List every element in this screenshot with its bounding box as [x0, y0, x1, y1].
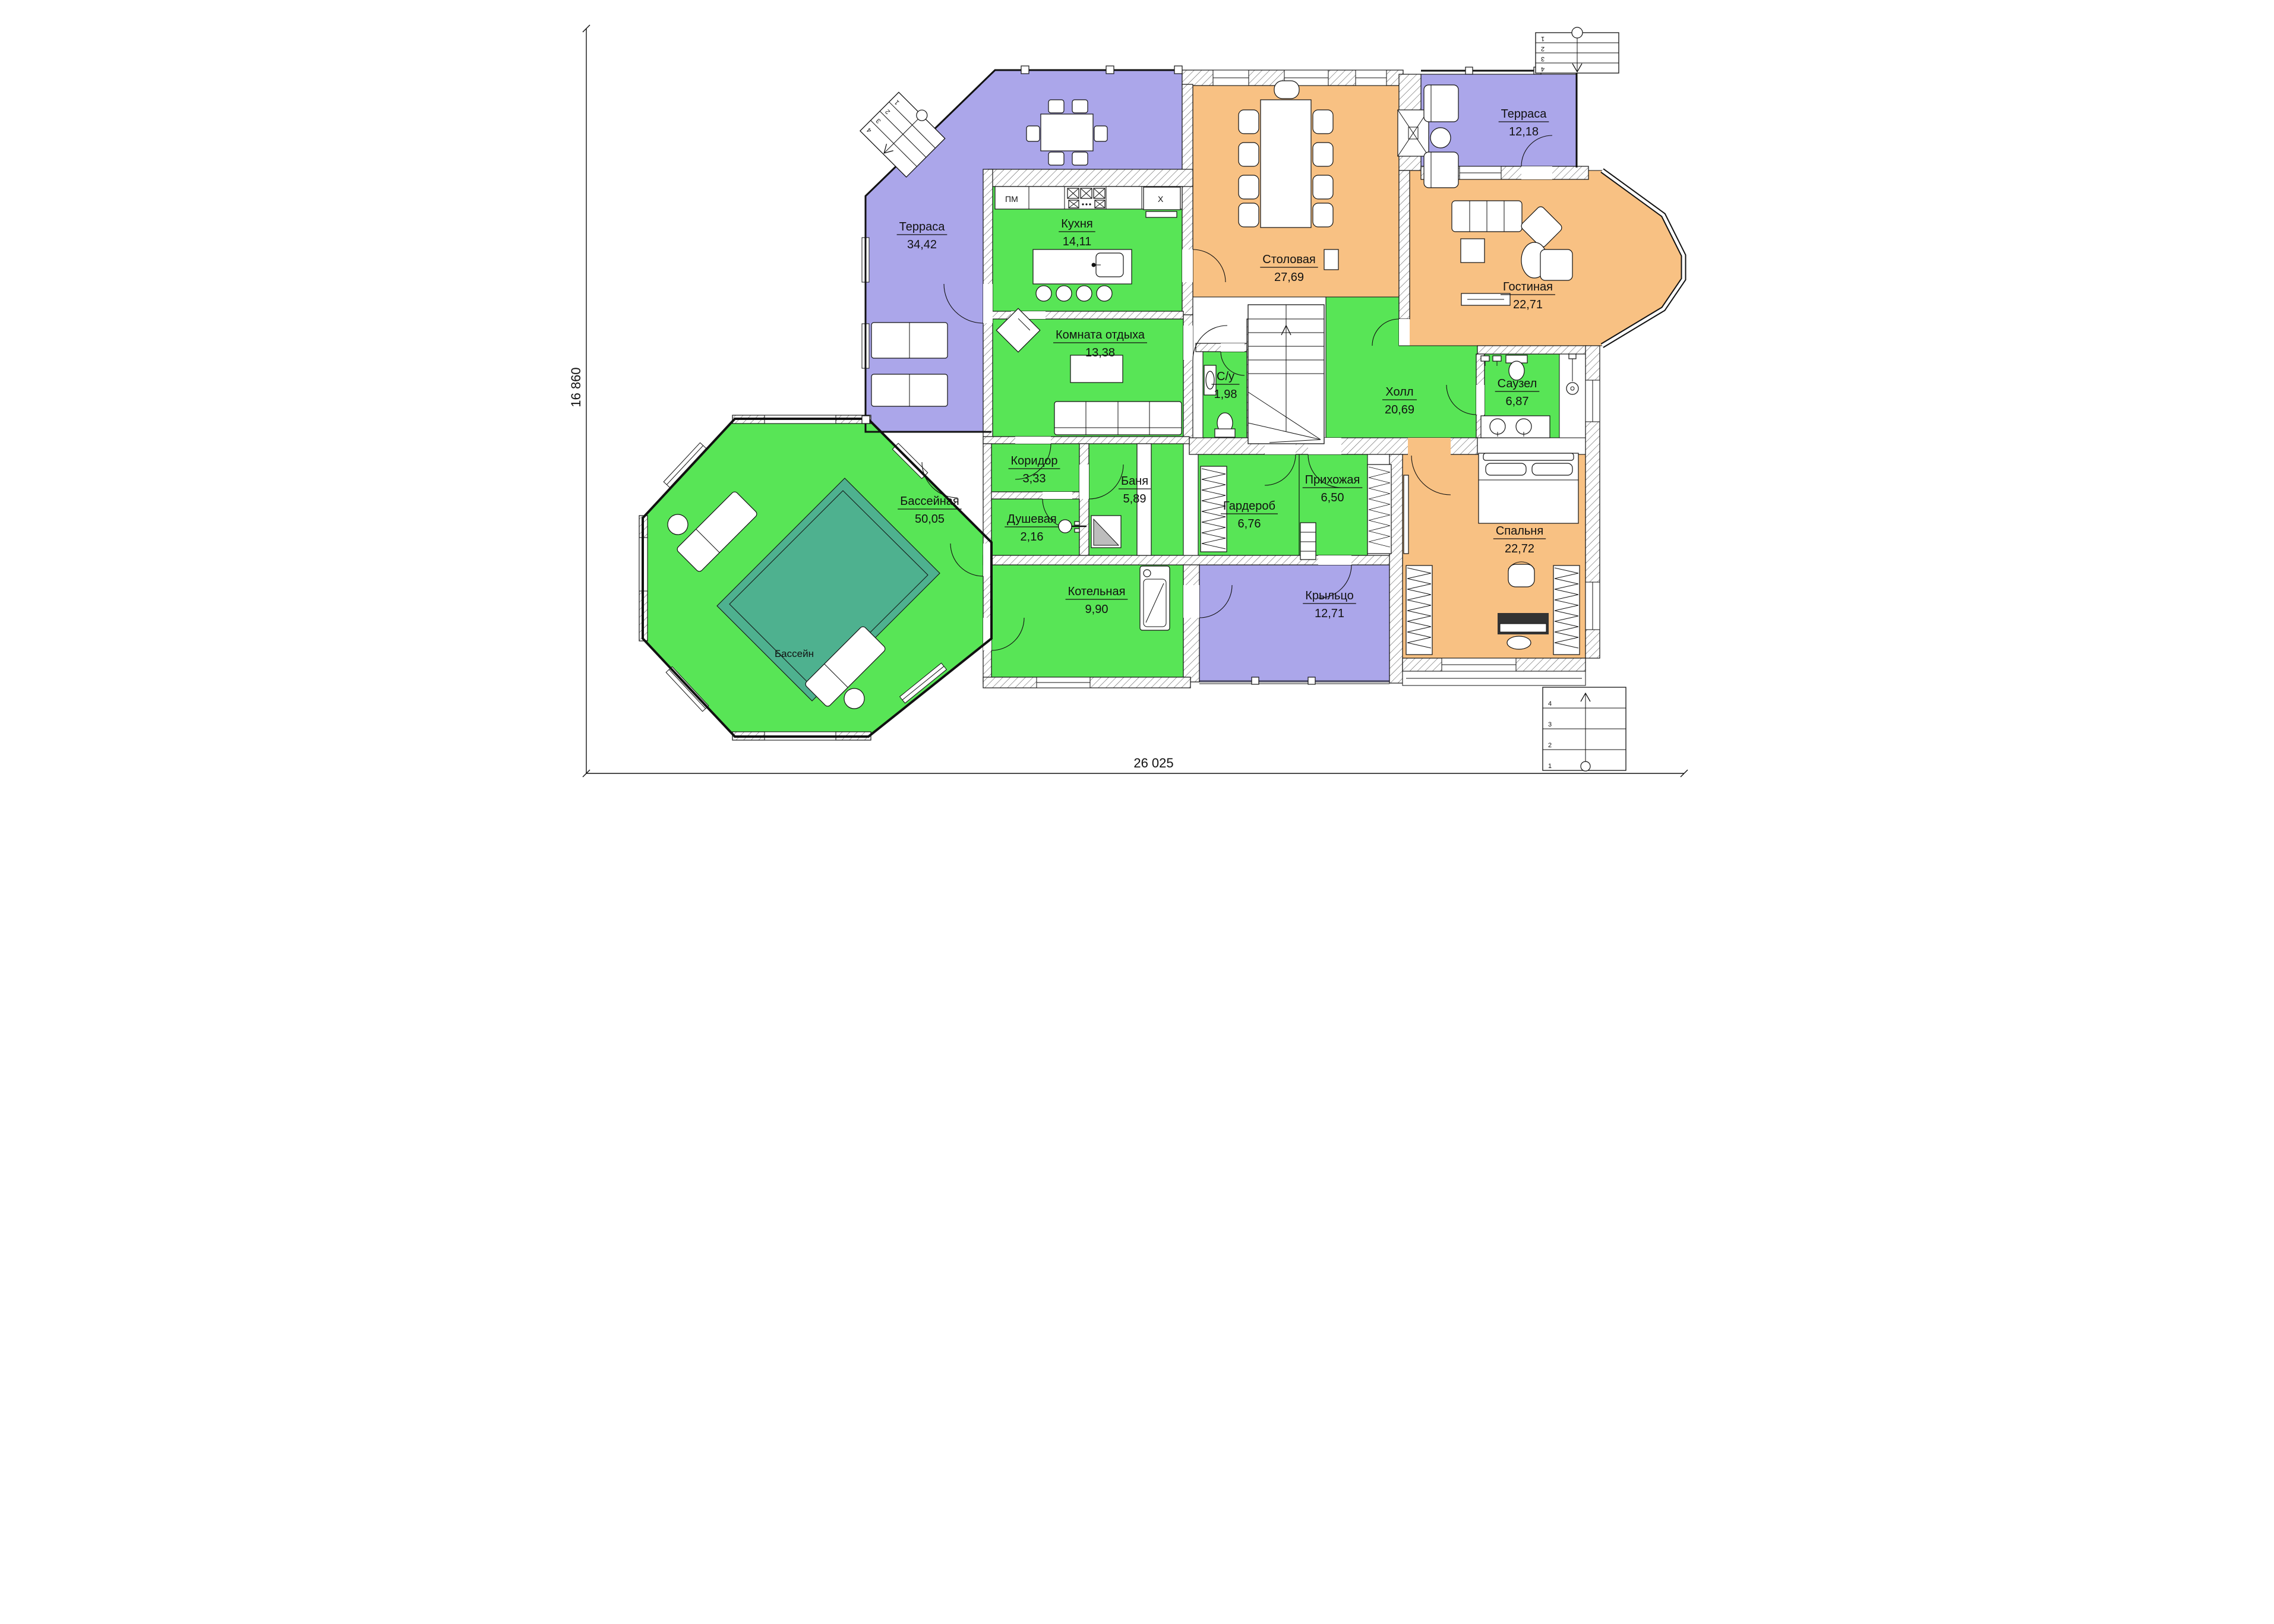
room-area: 13,38	[1085, 346, 1115, 359]
exterior-stairs-top-right: 1234	[1536, 27, 1619, 73]
room-area: 3,33	[1023, 472, 1046, 485]
room-name: Терраса	[1501, 108, 1547, 121]
dim-height: 16 860	[568, 367, 583, 407]
interior-staircase	[1248, 305, 1324, 444]
room-area: 34,42	[907, 238, 937, 251]
room-name: Котельная	[1068, 585, 1126, 598]
stair-step-number: 1	[1541, 35, 1545, 42]
room-area: 6,50	[1321, 491, 1344, 504]
exterior-stairs-bottom: 4321	[1543, 687, 1626, 771]
dim-width: 26 025	[1133, 756, 1173, 770]
terrace-post	[1021, 66, 1029, 74]
room-area: 6,76	[1238, 517, 1261, 530]
stool	[1507, 636, 1531, 649]
room-area: 27,69	[1274, 271, 1304, 284]
room-area: 2,16	[1021, 530, 1044, 544]
room-name: Баня	[1121, 475, 1148, 488]
porch-post	[1308, 677, 1315, 684]
bedroom-chair	[1508, 564, 1534, 587]
terrace-post	[1106, 66, 1114, 74]
room-name: Крыльцо	[1305, 589, 1354, 602]
room-name: Саузел	[1498, 377, 1537, 390]
room-name: Душевая	[1007, 513, 1057, 526]
stair-step-number: 4	[1548, 700, 1552, 707]
terrace-post	[1174, 66, 1182, 74]
room-area: 50,05	[915, 513, 945, 526]
porch-post	[1252, 677, 1259, 684]
stair-step-number: 3	[1541, 55, 1545, 62]
stair-step-number: 4	[1541, 65, 1545, 72]
room-porch	[1199, 565, 1389, 682]
room-name: Гостиная	[1503, 280, 1553, 293]
floor-plan-page: ПМ Х	[568, 0, 1706, 812]
room-name: Гардероб	[1223, 500, 1275, 513]
wall-tv	[1404, 475, 1408, 554]
room-name: Прихожая	[1305, 473, 1360, 486]
room-area: 20,69	[1385, 403, 1414, 416]
room-area: 12,71	[1315, 607, 1344, 620]
stove-icon	[1067, 188, 1105, 208]
room-area: 22,72	[1505, 542, 1534, 555]
room-name: Кухня	[1061, 217, 1093, 230]
boiler-unit	[1140, 566, 1170, 630]
fridge-icon: Х	[1144, 187, 1180, 217]
room-name: Терраса	[899, 220, 946, 233]
stair-step-number: 2	[1548, 742, 1552, 749]
room-name: Бассейн	[775, 648, 814, 659]
room-name: Комната отдыха	[1056, 328, 1145, 342]
room-area: 6,87	[1506, 395, 1529, 408]
room-name: Столовая	[1262, 253, 1315, 266]
room-area: 22,71	[1513, 298, 1543, 311]
label-pool: Бассейн	[775, 648, 814, 659]
entry-radiator	[1300, 523, 1316, 560]
stair-step-number: 2	[1541, 45, 1545, 52]
room-name: Холл	[1385, 386, 1413, 399]
stair-step-number: 1	[1548, 763, 1552, 770]
terrace-post	[1466, 67, 1473, 74]
floor-plan-canvas: ПМ Х	[568, 0, 1706, 812]
room-name: Бассейная	[900, 495, 959, 508]
room-area: 14,11	[1063, 235, 1092, 248]
terrace-post	[862, 416, 870, 424]
room-name: С/у	[1217, 370, 1234, 383]
room-area: 5,89	[1123, 492, 1147, 505]
room-name: Спальня	[1496, 525, 1543, 538]
room-area: 12,18	[1509, 125, 1539, 138]
room-area: 9,90	[1085, 603, 1108, 616]
stair-step-number: 3	[1548, 721, 1552, 728]
fridge-label: Х	[1158, 194, 1164, 204]
dishwasher-label: ПМ	[1005, 194, 1018, 204]
hall-side-table	[1324, 249, 1338, 270]
room-name: Коридор	[1011, 454, 1058, 467]
room-area: 1,98	[1214, 388, 1237, 401]
